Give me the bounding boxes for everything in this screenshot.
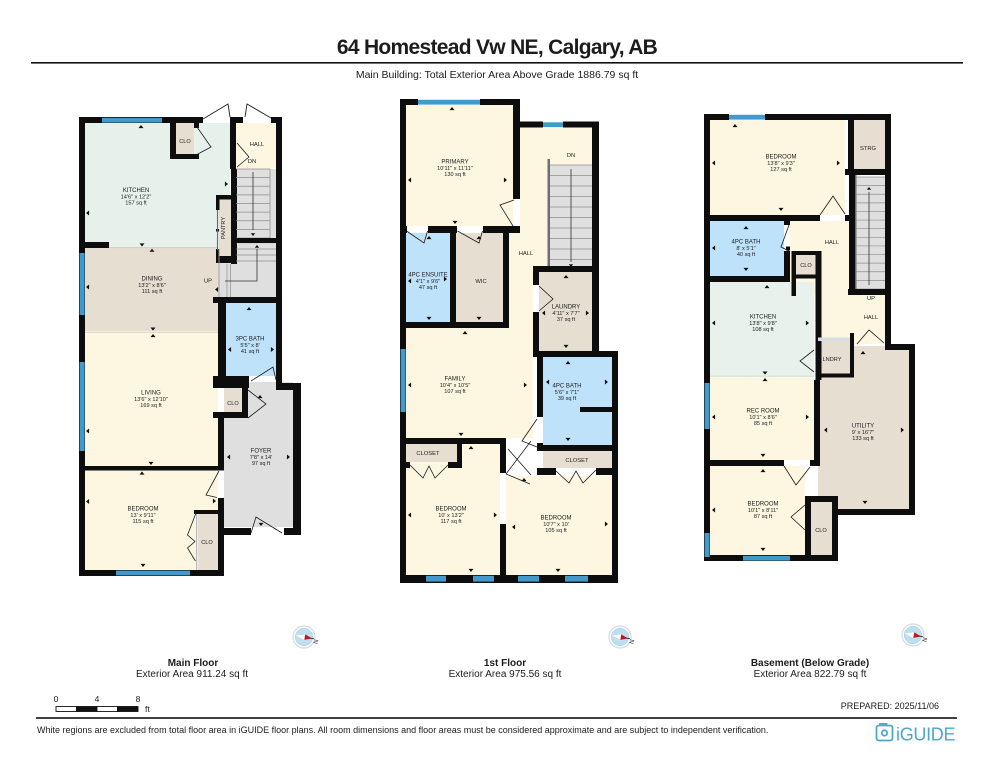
svg-text:97 sq ft: 97 sq ft — [252, 461, 271, 467]
svg-text:HALL: HALL — [864, 315, 879, 321]
svg-text:1st Floor: 1st Floor — [484, 658, 526, 669]
svg-text:4PC BATH: 4PC BATH — [553, 384, 582, 390]
svg-text:LAUNDRY: LAUNDRY — [552, 305, 581, 311]
svg-text:DINING: DINING — [142, 277, 163, 283]
svg-text:4: 4 — [95, 694, 100, 704]
svg-text:N: N — [629, 639, 636, 645]
svg-text:37 sq ft: 37 sq ft — [557, 317, 576, 323]
svg-text:115 sq ft: 115 sq ft — [132, 519, 153, 525]
svg-text:4'11" x 7'7": 4'11" x 7'7" — [552, 311, 579, 317]
svg-text:LIVING: LIVING — [141, 391, 161, 397]
svg-text:KITCHEN: KITCHEN — [123, 188, 149, 194]
svg-text:LNDRY: LNDRY — [823, 357, 842, 363]
svg-text:CLO: CLO — [179, 139, 191, 145]
svg-text:Main Building: Total Exterior: Main Building: Total Exterior Area Above… — [356, 69, 638, 81]
svg-text:10'1" x 8'11": 10'1" x 8'11" — [748, 508, 778, 514]
svg-text:FOYER: FOYER — [251, 449, 272, 455]
svg-text:85 sq ft: 85 sq ft — [754, 421, 773, 427]
svg-text:N: N — [922, 637, 929, 643]
svg-text:KITCHEN: KITCHEN — [750, 315, 776, 321]
svg-text:REC ROOM: REC ROOM — [747, 409, 780, 415]
svg-text:STRG: STRG — [860, 146, 877, 152]
svg-text:BEDROOM: BEDROOM — [765, 155, 796, 161]
svg-text:CLO: CLO — [815, 528, 827, 534]
svg-text:PANTRY: PANTRY — [221, 217, 227, 239]
svg-text:4PC ENSUITE: 4PC ENSUITE — [408, 273, 447, 279]
svg-text:N: N — [313, 639, 320, 645]
svg-text:87 sq ft: 87 sq ft — [754, 514, 773, 520]
svg-text:4PC BATH: 4PC BATH — [732, 240, 761, 246]
svg-text:10'7" x 10': 10'7" x 10' — [543, 522, 569, 528]
svg-text:169 sq ft: 169 sq ft — [140, 403, 162, 409]
svg-text:PREPARED: 2025/11/06: PREPARED: 2025/11/06 — [841, 701, 939, 711]
svg-text:BEDROOM: BEDROOM — [747, 502, 778, 508]
svg-text:3PC BATH: 3PC BATH — [236, 337, 265, 343]
svg-text:13' x 9'11": 13' x 9'11" — [130, 513, 155, 519]
svg-text:117 sq ft: 117 sq ft — [440, 519, 461, 525]
svg-text:10'4" x 10'5": 10'4" x 10'5" — [440, 383, 471, 389]
svg-text:8' x 5'1": 8' x 5'1" — [736, 246, 755, 252]
svg-text:BEDROOM: BEDROOM — [435, 507, 466, 513]
svg-text:FAMILY: FAMILY — [445, 377, 466, 383]
svg-text:10'1" x 8'6": 10'1" x 8'6" — [749, 415, 777, 421]
svg-text:CLO: CLO — [800, 263, 812, 269]
svg-text:13'8" x 9'8": 13'8" x 9'8" — [749, 321, 777, 327]
svg-text:UP: UP — [867, 296, 875, 302]
svg-text:13'8" x 9'3": 13'8" x 9'3" — [767, 161, 795, 167]
svg-text:130 sq ft: 130 sq ft — [444, 172, 466, 178]
svg-text:13'6" x 12'10": 13'6" x 12'10" — [134, 397, 168, 403]
svg-text:7'8" x 14': 7'8" x 14' — [250, 455, 272, 461]
svg-text:HALL: HALL — [825, 240, 840, 246]
svg-text:0: 0 — [54, 694, 59, 704]
svg-text:10' x 13'2": 10' x 13'2" — [438, 513, 464, 519]
svg-text:40 sq ft: 40 sq ft — [737, 252, 756, 258]
svg-text:PRIMARY: PRIMARY — [441, 160, 468, 166]
svg-text:157 sq ft: 157 sq ft — [125, 201, 147, 207]
svg-text:DN: DN — [248, 159, 256, 165]
svg-text:ft: ft — [145, 704, 150, 714]
svg-text:8: 8 — [136, 694, 141, 704]
svg-text:64 Homestead Vw NE, Calgary, A: 64 Homestead Vw NE, Calgary, AB — [337, 36, 658, 59]
svg-text:5'5" x 8': 5'5" x 8' — [240, 343, 259, 349]
svg-text:107 sq ft: 107 sq ft — [444, 389, 466, 395]
svg-text:133 sq ft: 133 sq ft — [852, 436, 874, 442]
svg-text:111 sq ft: 111 sq ft — [142, 289, 163, 295]
svg-text:105 sq ft: 105 sq ft — [545, 528, 567, 534]
svg-text:DN: DN — [567, 153, 575, 159]
svg-text:iGUIDE: iGUIDE — [896, 725, 955, 745]
svg-text:5'6" x 7'1": 5'6" x 7'1" — [555, 390, 579, 396]
svg-text:UTILITY: UTILITY — [852, 424, 874, 430]
svg-text:White regions are excluded fro: White regions are excluded from total fl… — [37, 725, 768, 735]
svg-text:CLOSET: CLOSET — [565, 458, 589, 464]
svg-text:CLOSET: CLOSET — [416, 451, 440, 457]
svg-text:9' x 16'7": 9' x 16'7" — [852, 430, 874, 436]
svg-text:CLO: CLO — [201, 540, 213, 546]
svg-text:4'1" x 9'6": 4'1" x 9'6" — [416, 279, 440, 285]
svg-text:47 sq ft: 47 sq ft — [419, 285, 438, 291]
svg-text:Basement (Below Grade): Basement (Below Grade) — [751, 658, 869, 669]
svg-text:13'2" x 8'6": 13'2" x 8'6" — [138, 283, 166, 289]
svg-text:Exterior Area 975.56 sq ft: Exterior Area 975.56 sq ft — [449, 669, 562, 680]
svg-text:BEDROOM: BEDROOM — [540, 516, 571, 522]
svg-text:127 sq ft: 127 sq ft — [770, 167, 792, 173]
svg-text:WIC: WIC — [475, 279, 486, 285]
svg-text:HALL: HALL — [519, 251, 534, 257]
svg-text:14'6" x 12'2": 14'6" x 12'2" — [121, 194, 152, 200]
svg-text:Exterior Area 911.24 sq ft: Exterior Area 911.24 sq ft — [136, 669, 248, 680]
svg-text:Exterior Area 822.79 sq ft: Exterior Area 822.79 sq ft — [754, 669, 867, 680]
svg-text:108 sq ft: 108 sq ft — [752, 327, 774, 333]
svg-text:Main Floor: Main Floor — [168, 658, 219, 669]
svg-text:10'11" x 11'11": 10'11" x 11'11" — [437, 166, 473, 172]
svg-text:UP: UP — [204, 279, 212, 285]
svg-text:CLO: CLO — [227, 401, 239, 407]
svg-text:HALL: HALL — [250, 142, 265, 148]
svg-text:41 sq ft: 41 sq ft — [241, 349, 260, 355]
svg-text:BEDROOM: BEDROOM — [127, 507, 158, 513]
svg-text:39 sq ft: 39 sq ft — [558, 396, 577, 402]
